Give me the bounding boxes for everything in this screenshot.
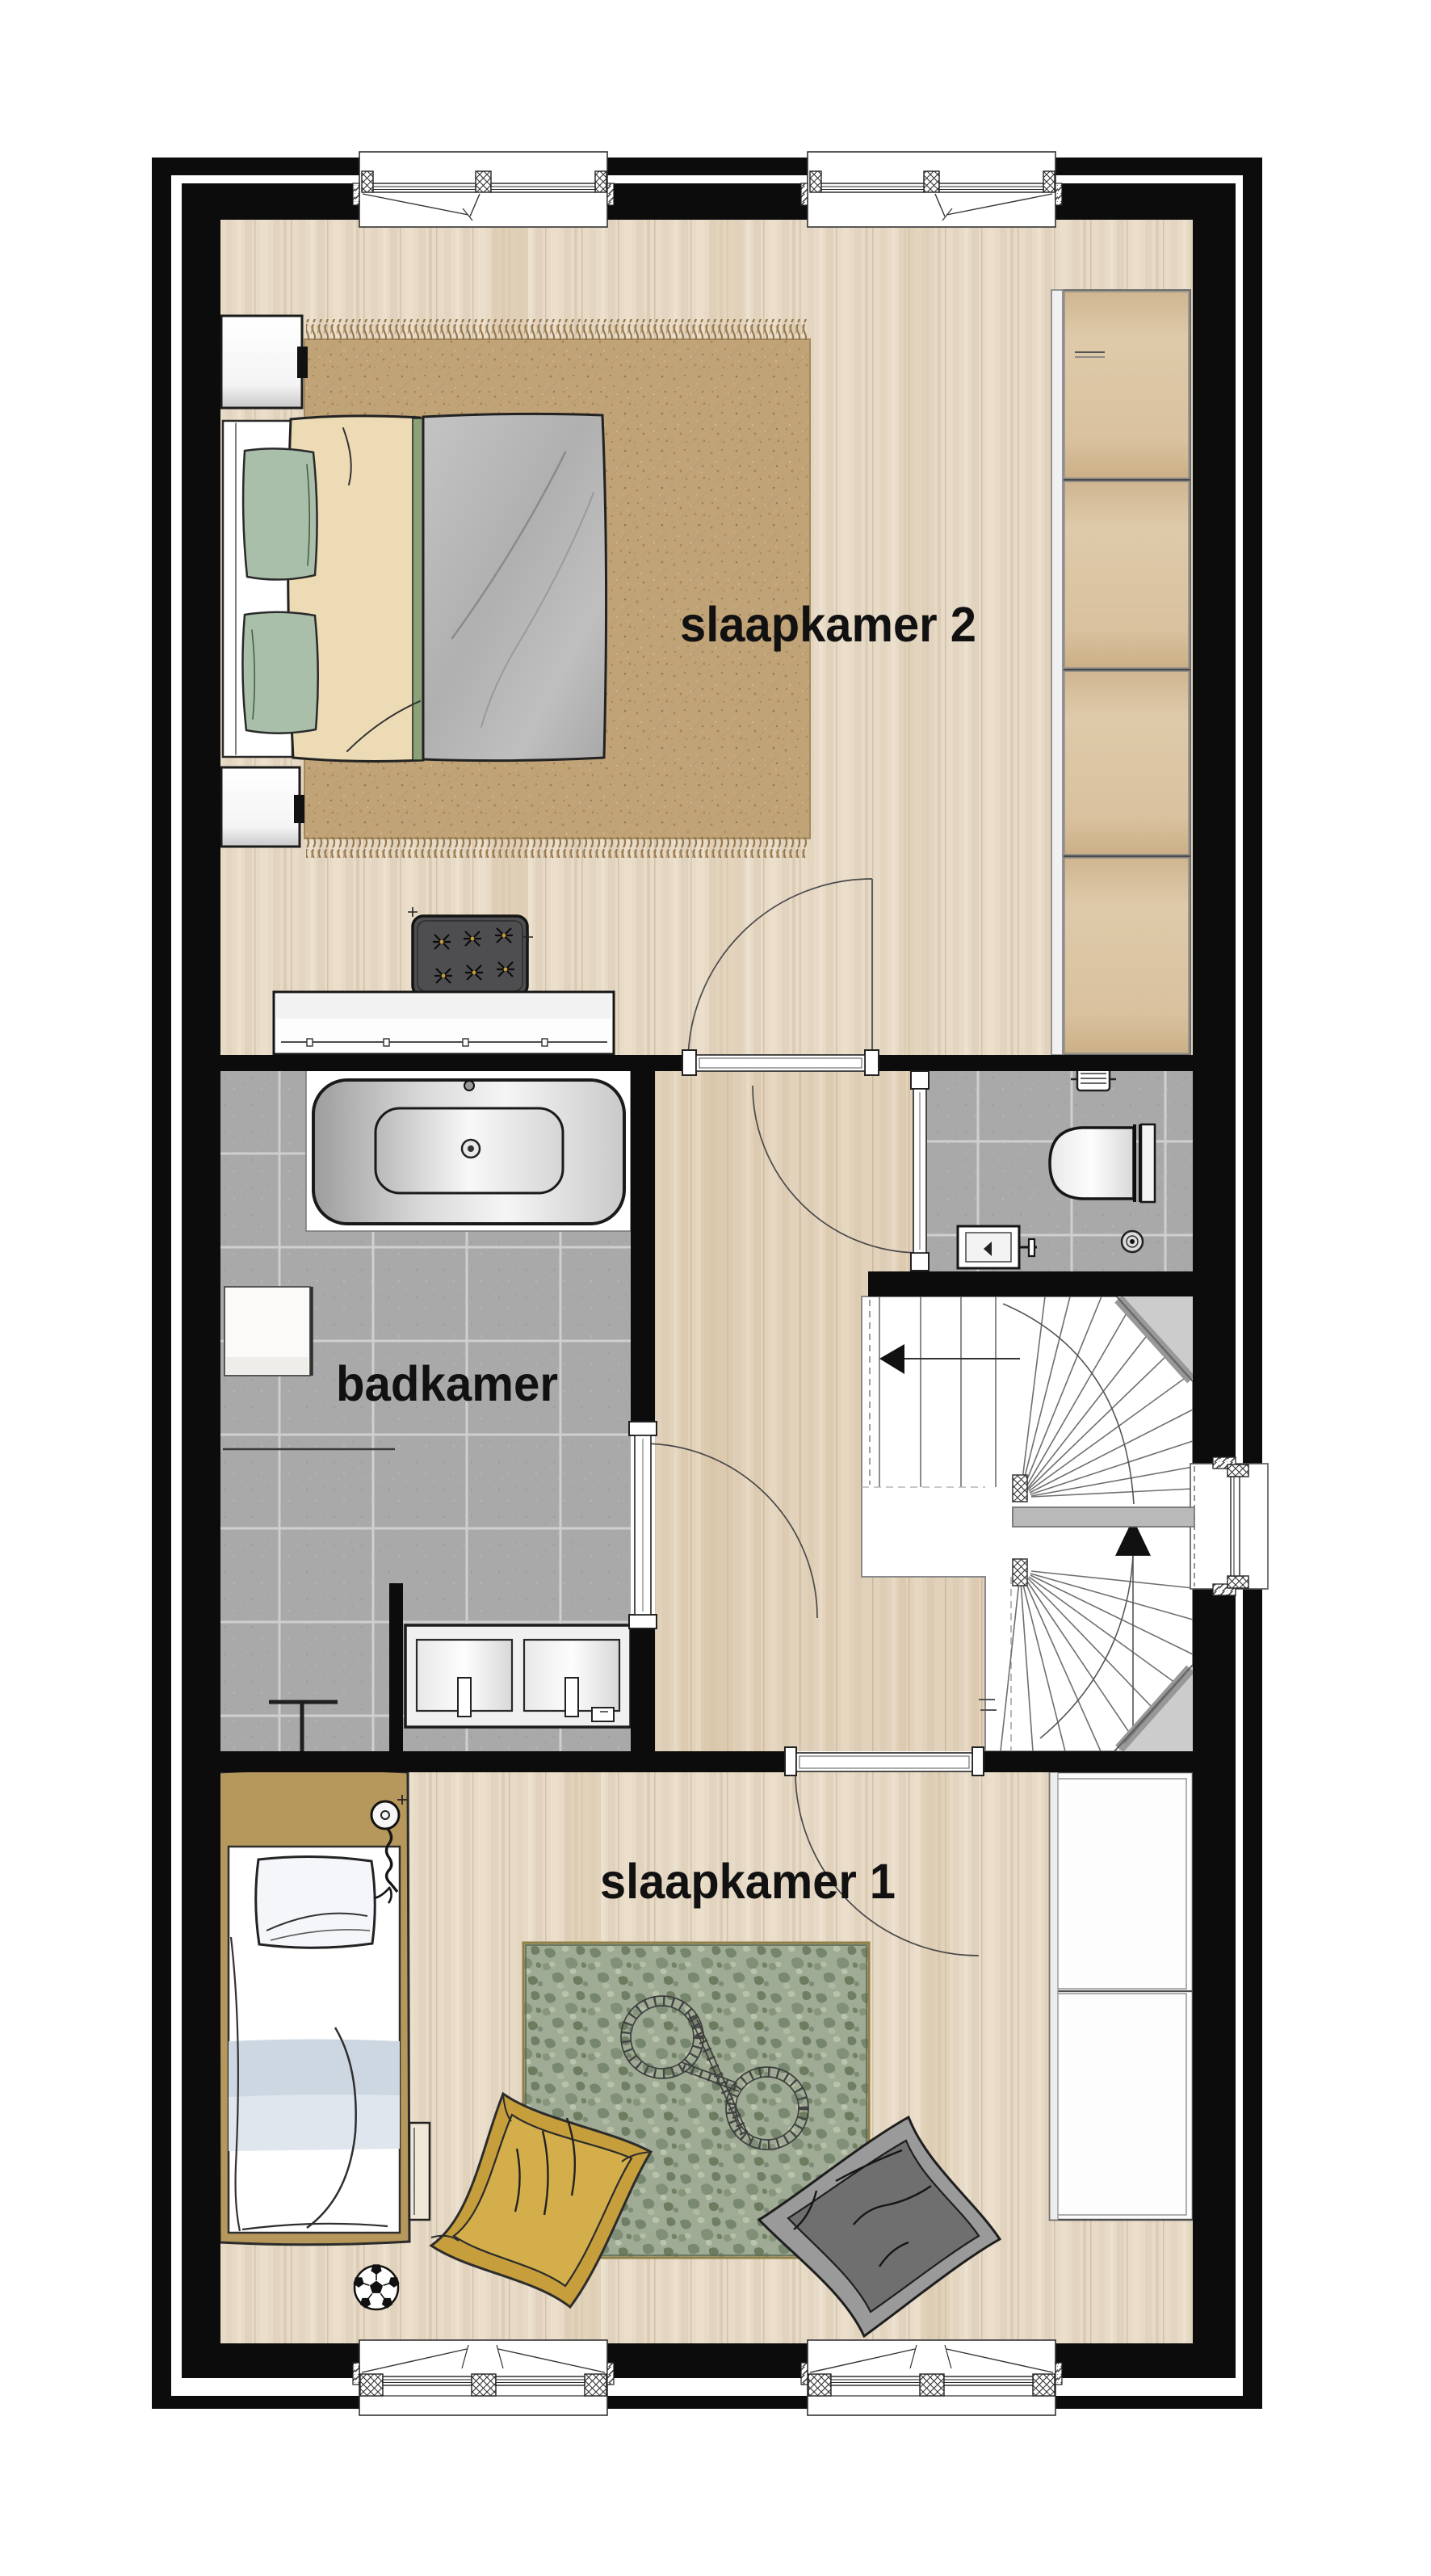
- svg-text:slaapkamer 2: slaapkamer 2: [680, 597, 976, 652]
- svg-text:slaapkamer 1: slaapkamer 1: [600, 1854, 896, 1909]
- svg-text:badkamer: badkamer: [336, 1356, 558, 1411]
